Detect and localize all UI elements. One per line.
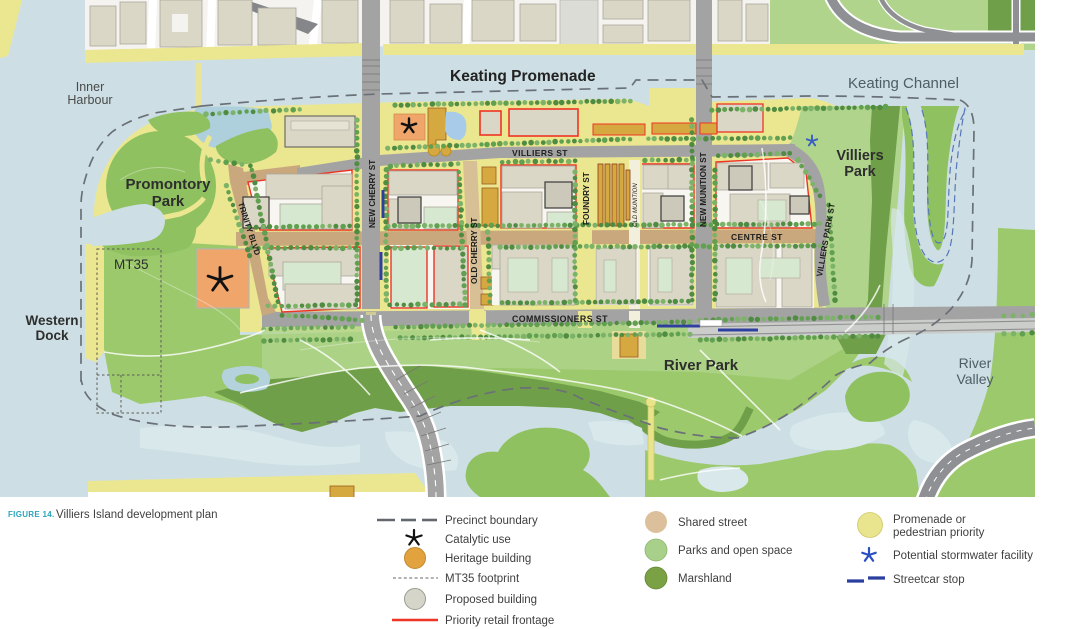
svg-text:Dock: Dock xyxy=(35,328,69,343)
svg-text:Precinct boundary: Precinct boundary xyxy=(445,515,538,527)
svg-text:Keating Channel: Keating Channel xyxy=(848,75,959,92)
svg-text:FOUNDRY ST: FOUNDRY ST xyxy=(582,172,591,225)
svg-text:Park: Park xyxy=(152,193,185,210)
svg-text:River: River xyxy=(959,355,992,371)
svg-text:Promontory: Promontory xyxy=(125,176,211,193)
svg-text:NEW MUNITION ST: NEW MUNITION ST xyxy=(699,152,708,227)
svg-text:COMMISSIONERS ST: COMMISSIONERS ST xyxy=(512,314,608,324)
svg-text:Streetcar stop: Streetcar stop xyxy=(893,574,965,586)
svg-text:Priority retail frontage: Priority retail frontage xyxy=(445,615,554,627)
svg-text:FIGURE 14.: FIGURE 14. xyxy=(8,510,55,519)
svg-text:OLD MUNITION: OLD MUNITION xyxy=(633,183,639,227)
svg-text:Western: Western xyxy=(25,313,78,328)
svg-text:NEW CHERRY ST: NEW CHERRY ST xyxy=(368,160,377,228)
svg-text:Park: Park xyxy=(844,164,876,180)
svg-text:Villiers: Villiers xyxy=(836,148,883,164)
svg-text:Shared street: Shared street xyxy=(678,517,748,529)
svg-text:Harbour: Harbour xyxy=(67,93,112,107)
svg-text:Promenade or: Promenade or xyxy=(893,514,966,526)
svg-text:Proposed building: Proposed building xyxy=(445,594,537,606)
svg-text:MT35: MT35 xyxy=(114,257,149,272)
svg-text:River Park: River Park xyxy=(664,357,739,374)
svg-text:OLD CHERRY ST: OLD CHERRY ST xyxy=(470,218,479,284)
svg-text:Keating Promenade: Keating Promenade xyxy=(450,68,596,85)
svg-text:Valley: Valley xyxy=(956,371,993,387)
svg-text:Villiers Island development pl: Villiers Island development plan xyxy=(56,509,218,521)
svg-text:Heritage building: Heritage building xyxy=(445,553,531,565)
svg-text:Catalytic use: Catalytic use xyxy=(445,534,511,546)
svg-text:pedestrian priority: pedestrian priority xyxy=(893,527,985,539)
svg-text:Inner: Inner xyxy=(76,80,105,94)
svg-text:Marshland: Marshland xyxy=(678,573,732,585)
svg-text:VILLIERS ST: VILLIERS ST xyxy=(512,148,568,158)
svg-text:MT35 footprint: MT35 footprint xyxy=(445,573,520,585)
svg-text:Potential stormwater facility: Potential stormwater facility xyxy=(893,550,1033,562)
svg-text:CENTRE ST: CENTRE ST xyxy=(731,232,783,242)
svg-text:Parks and open space: Parks and open space xyxy=(678,545,792,557)
